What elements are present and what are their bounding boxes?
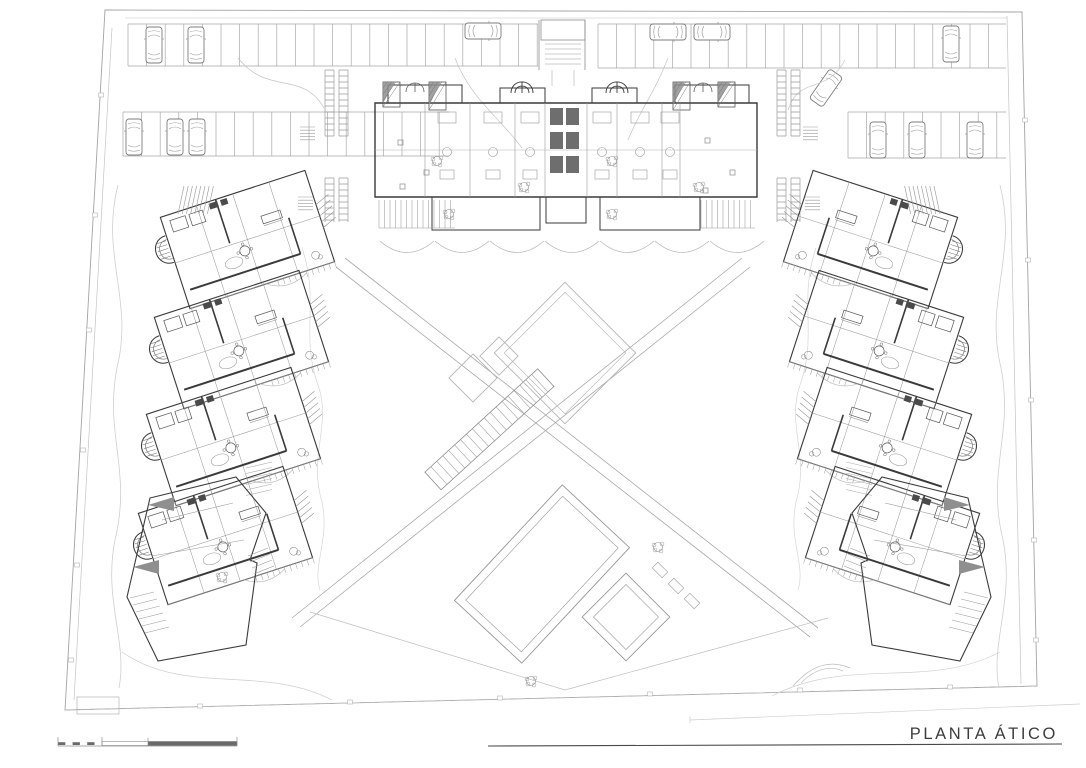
terrace-marker xyxy=(400,184,405,189)
plant-cluster-icon xyxy=(652,542,664,553)
circular-plaza xyxy=(793,664,850,686)
pergola-comb xyxy=(701,200,755,228)
unit-furniture-set xyxy=(484,112,502,179)
wing-apartment-modules xyxy=(124,166,351,617)
core-bed xyxy=(566,156,579,173)
trellis-ladder xyxy=(339,178,348,222)
core-bed xyxy=(550,156,563,173)
car-icon xyxy=(650,22,686,42)
core-furniture xyxy=(550,108,579,173)
survey-mark xyxy=(948,685,953,689)
wing-left xyxy=(124,166,351,661)
car-icon xyxy=(165,119,185,155)
plant-cluster-icon xyxy=(606,209,618,220)
wing-top-trellis xyxy=(178,186,213,214)
building-top xyxy=(375,82,764,253)
wing-right xyxy=(767,166,994,661)
core-bed xyxy=(566,108,579,125)
unit-furniture-set xyxy=(593,112,611,179)
unit-furniture-set xyxy=(438,112,456,179)
scale-bar-fill xyxy=(148,742,237,746)
plan-title: PLANTA ÁTICO xyxy=(910,724,1058,743)
trellis-ladder xyxy=(791,70,800,136)
bottom-right-line xyxy=(690,704,1080,723)
site-plan-svg: PLANTA ÁTICO xyxy=(0,0,1086,768)
car-icon xyxy=(907,122,927,158)
survey-mark xyxy=(81,448,86,452)
car-icon xyxy=(186,27,206,63)
survey-mark xyxy=(1029,398,1034,402)
balcony-scallop xyxy=(655,241,709,253)
stair-tower-arch-right xyxy=(606,82,628,93)
trellis-ladder xyxy=(777,178,786,222)
fence-left xyxy=(74,28,112,700)
balcony-scallop xyxy=(710,241,764,253)
survey-mark xyxy=(498,696,503,700)
plant-cluster-icon xyxy=(518,182,530,193)
wave-bottom-left xyxy=(122,652,332,700)
unit-furniture-set xyxy=(631,112,649,179)
wave-inner-left xyxy=(302,248,324,590)
pools xyxy=(449,282,670,663)
balcony-scallop xyxy=(545,241,599,253)
pergola-hatches xyxy=(383,82,735,110)
apartment-module xyxy=(146,166,351,321)
stair-tower-arch-left xyxy=(511,82,533,93)
pool-step xyxy=(668,578,684,594)
survey-mark xyxy=(99,93,104,97)
small-arches xyxy=(406,83,712,92)
apartment-module xyxy=(132,363,337,518)
balcony-scallop xyxy=(600,241,654,253)
survey-mark xyxy=(798,688,803,692)
apartment-module xyxy=(124,462,329,617)
pool-step xyxy=(684,593,700,609)
car-icon xyxy=(807,68,844,109)
balcony-scallops xyxy=(380,241,764,253)
stair-hatch xyxy=(805,197,820,210)
title-underline xyxy=(488,744,1062,746)
survey-mark xyxy=(648,692,653,696)
stair-hatch xyxy=(298,197,313,210)
arch-icon xyxy=(694,83,712,92)
pool xyxy=(582,573,670,661)
balcony-scallop xyxy=(380,241,434,253)
plant-cluster-icon xyxy=(216,572,228,583)
main-entrance xyxy=(539,20,585,86)
pergola-icon xyxy=(673,82,690,110)
survey-mark xyxy=(1023,118,1028,122)
courtyard xyxy=(292,258,850,690)
plant-cluster-icon xyxy=(431,156,443,167)
survey-mark xyxy=(1026,258,1031,262)
car-icon xyxy=(965,122,985,158)
apartment-module xyxy=(140,266,345,421)
courtyard-deck-edges xyxy=(310,612,828,690)
pergola-combs xyxy=(379,200,755,228)
end-terrace-steps-left xyxy=(130,592,169,633)
trellis-ladder xyxy=(339,70,348,136)
fence-right xyxy=(1007,16,1021,684)
car-icon xyxy=(868,122,888,158)
trellis-ladder xyxy=(325,70,334,136)
survey-mark xyxy=(198,704,203,708)
pool xyxy=(454,485,629,663)
scale-dash xyxy=(87,742,94,745)
pool-step xyxy=(652,562,668,578)
survey-mark xyxy=(75,563,80,567)
car-icon xyxy=(941,26,961,62)
terrace-marker xyxy=(730,170,735,175)
pool xyxy=(480,337,518,375)
core-bed xyxy=(550,108,563,125)
unit-furniture-set xyxy=(521,112,539,179)
balcony-scallop xyxy=(435,241,489,253)
survey-mark xyxy=(1032,538,1037,542)
car-icon xyxy=(124,119,144,155)
wave-right xyxy=(996,185,1006,688)
plant-clusters xyxy=(216,156,705,687)
plant-cluster-icon xyxy=(525,676,537,687)
scale-dash xyxy=(58,742,65,745)
survey-mark xyxy=(1034,638,1039,642)
plant-cluster-icon xyxy=(606,156,618,167)
survey-mark xyxy=(87,328,92,332)
end-terrace-shade-2 xyxy=(133,560,159,574)
entrance-steps xyxy=(545,44,581,64)
wave-left xyxy=(112,185,122,688)
building-lower-blocks xyxy=(432,197,700,230)
pergola-comb xyxy=(379,200,455,228)
scale-bar-subdivisions xyxy=(58,742,95,745)
entrance-path xyxy=(552,70,574,86)
trellis-ladder xyxy=(777,70,786,136)
stair-hatch xyxy=(803,127,818,140)
courtyard-diagonal-paths xyxy=(292,258,818,637)
survey-mark xyxy=(69,658,74,662)
survey-mark xyxy=(348,700,353,704)
car-icon xyxy=(465,21,501,41)
car-icon xyxy=(694,22,730,42)
car-icon xyxy=(187,119,207,155)
scale-dash xyxy=(73,742,80,745)
car-icon xyxy=(144,27,164,63)
entrance-walls xyxy=(539,20,585,70)
scale-bar xyxy=(58,737,237,746)
entrance-landing xyxy=(541,20,585,40)
wave-inner-right xyxy=(794,248,816,590)
trellis-lines xyxy=(178,186,213,214)
utility-box xyxy=(77,697,119,714)
unit-furniture-set xyxy=(661,112,679,179)
pergola-icon xyxy=(429,82,446,110)
balcony-scallop xyxy=(490,241,544,253)
pool-side-steps xyxy=(652,562,700,609)
core-bed xyxy=(550,132,563,149)
terrace-marker xyxy=(705,138,710,143)
core-bed xyxy=(566,132,579,149)
stair-hatch xyxy=(300,127,315,140)
drawing-sheet: PLANTA ÁTICO xyxy=(0,0,1086,768)
survey-mark xyxy=(93,213,98,217)
arch-icon xyxy=(406,83,424,92)
